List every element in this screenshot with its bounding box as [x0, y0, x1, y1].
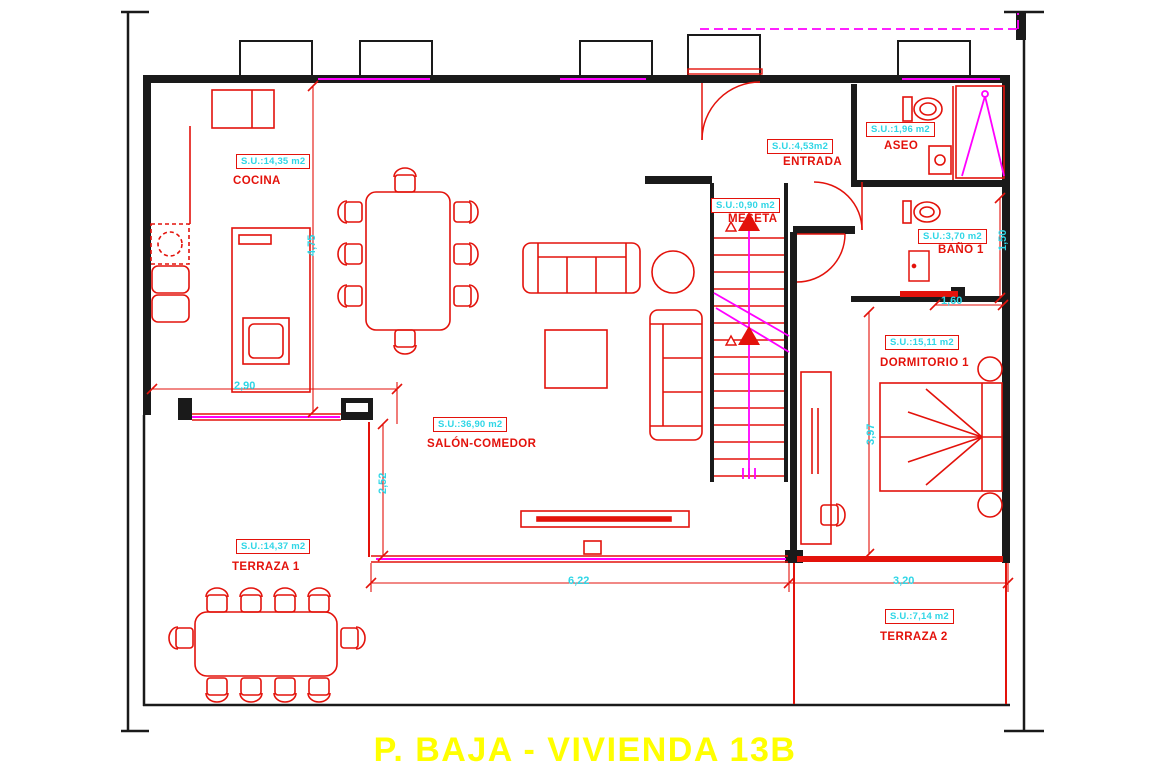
floor-plan-canvas: S.U.:14,35 m2 S.U.:4,53m2 S.U.:1,96 m2 S…	[0, 0, 1170, 782]
room-label-dormitorio-1: DORMITORIO 1	[880, 357, 969, 369]
room-label-aseo: ASEO	[884, 140, 918, 152]
staircase	[714, 212, 789, 479]
party-walls	[121, 12, 1044, 732]
floor-plan-drawing	[0, 0, 1170, 782]
room-label-salon-comedor: SALÓN-COMEDOR	[427, 438, 536, 450]
area-box-bano-1: S.U.:3,70 m2	[918, 229, 987, 244]
dimension-cocina-width: 2,90	[234, 380, 255, 392]
area-box-dormitorio-1: S.U.:15,11 m2	[885, 335, 959, 350]
living-room-furniture	[521, 243, 702, 554]
shower-enclosure	[962, 91, 1004, 176]
area-box-aseo: S.U.:1,96 m2	[866, 122, 935, 137]
room-label-terraza-2: TERRAZA 2	[880, 631, 948, 643]
area-box-meseta: S.U.:0,90 m2	[711, 198, 780, 213]
dimension-salon-edge: 2,52	[377, 473, 389, 494]
kitchen-furniture	[151, 90, 310, 392]
room-label-entrada: ENTRADA	[783, 156, 842, 168]
room-label-bano-1: BAÑO 1	[938, 244, 984, 256]
area-box-salon-comedor: S.U.:36,90 m2	[433, 417, 507, 432]
dimension-dormitorio-height: 3,97	[865, 424, 877, 445]
outdoor-dining-set	[169, 588, 365, 702]
dimension-bano-width: 1,60	[941, 295, 962, 307]
roof-dashed-line	[700, 13, 1018, 29]
roof-pillars	[240, 35, 970, 76]
dimension-terraza2-width: 3,20	[893, 575, 914, 587]
dimension-cocina-height: 4,75	[306, 235, 318, 256]
dimension-bano-height: 1,50	[997, 230, 1009, 251]
window-box-inner	[346, 403, 368, 412]
dimension-salon-width: 6,22	[568, 575, 589, 587]
plan-title: P. BAJA - VIVIENDA 13B	[374, 731, 797, 770]
area-box-terraza-1: S.U.:14,37 m2	[236, 539, 310, 554]
room-label-terraza-1: TERRAZA 1	[232, 561, 300, 573]
window-frames	[192, 69, 788, 562]
area-box-cocina: S.U.:14,35 m2	[236, 154, 310, 169]
area-box-entrada: S.U.:4,53m2	[767, 139, 833, 154]
room-label-meseta: MESETA	[728, 213, 777, 225]
terraza2-edge-bar	[797, 556, 1003, 562]
area-box-terraza-2: S.U.:7,14 m2	[885, 609, 954, 624]
room-label-cocina: COCINA	[233, 175, 281, 187]
dining-table-indoor	[338, 168, 478, 354]
bedroom-furniture	[801, 357, 1002, 544]
